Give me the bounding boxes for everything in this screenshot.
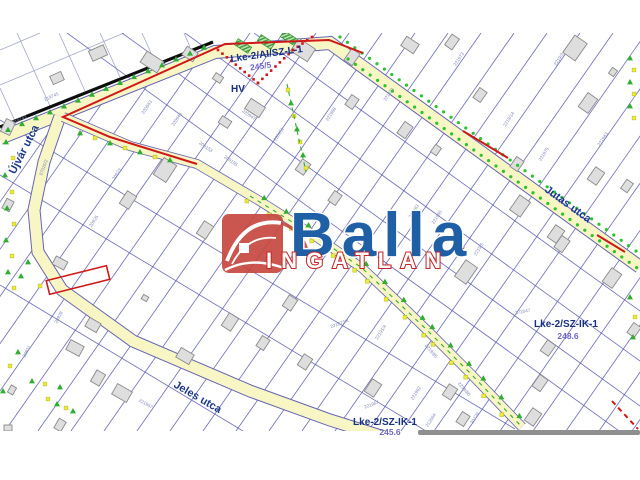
parcel-number: 221943 bbox=[596, 131, 609, 147]
tree-marker-green bbox=[70, 408, 76, 413]
building-footprint bbox=[7, 385, 16, 395]
building-footprint bbox=[218, 116, 232, 129]
street-tree-dot bbox=[524, 186, 527, 189]
street-tree-dot bbox=[413, 106, 416, 109]
street-tree-dot bbox=[435, 122, 438, 125]
street-tree-dot bbox=[576, 223, 579, 226]
building-footprint bbox=[295, 159, 311, 175]
road-jeles-utca bbox=[34, 116, 400, 442]
tree-marker-green bbox=[57, 384, 63, 389]
street-tree-dot bbox=[361, 68, 364, 71]
building-footprint bbox=[212, 73, 223, 84]
red-boundary-dot bbox=[274, 65, 277, 68]
street-tree-dot bbox=[561, 213, 564, 216]
street-tree-dot bbox=[428, 116, 431, 119]
red-boundary-dot bbox=[257, 82, 260, 85]
street-tree-dot bbox=[354, 63, 357, 66]
map-canvas[interactable]: 21974321974507026/2220943220945220947209… bbox=[0, 0, 640, 480]
street-tree-dot bbox=[420, 111, 423, 114]
street-tree-dot bbox=[494, 164, 497, 167]
street-tree-dot bbox=[598, 239, 601, 242]
street-tree-dot bbox=[627, 244, 630, 247]
street-tree-dot bbox=[464, 126, 467, 129]
building-footprint bbox=[397, 121, 413, 138]
street-tree-dot bbox=[449, 116, 452, 119]
street-tree-dot bbox=[613, 250, 616, 253]
zone-value-245-5: 245/5 bbox=[249, 60, 272, 73]
building-footprint bbox=[90, 370, 105, 386]
parcel-number: 212064 bbox=[424, 412, 437, 428]
building-footprint bbox=[112, 384, 133, 403]
tree-marker-yellow bbox=[93, 136, 97, 140]
street-tree-dot bbox=[635, 266, 638, 269]
parcel-number: 221975 bbox=[537, 146, 550, 162]
tree-marker-green bbox=[627, 79, 633, 84]
parcel-number: 219745 bbox=[43, 91, 59, 102]
street-tree-dot bbox=[457, 121, 460, 124]
street-tree-dot bbox=[398, 95, 401, 98]
street-tree-dot bbox=[546, 202, 549, 205]
street-tree-dot bbox=[591, 234, 594, 237]
tree-marker-yellow bbox=[431, 343, 435, 347]
street-tree-dot bbox=[376, 79, 379, 82]
parcel-number: 221968 bbox=[324, 106, 337, 122]
tree-marker-yellow bbox=[153, 155, 157, 159]
building-footprint bbox=[510, 195, 531, 217]
street-tree-dot bbox=[346, 57, 349, 60]
tree-marker-yellow bbox=[403, 315, 407, 319]
tree-marker-yellow bbox=[38, 284, 42, 288]
parcel-number: 221962 bbox=[409, 385, 422, 401]
building-footprint bbox=[621, 179, 634, 193]
tree-marker-yellow bbox=[482, 394, 486, 398]
street-label-jeles-utca: Jeles utca bbox=[171, 379, 224, 416]
building-footprint bbox=[578, 93, 598, 114]
tree-marker-yellow bbox=[10, 190, 14, 194]
tree-marker-yellow bbox=[384, 297, 388, 301]
parcel-number: 20729 bbox=[469, 411, 480, 425]
parcel-number: 220943 bbox=[140, 99, 153, 115]
tree-marker-yellow bbox=[286, 88, 290, 92]
building-footprint bbox=[602, 268, 622, 289]
building-footprint bbox=[587, 167, 605, 186]
zone-value-245-6: 245.6 bbox=[379, 427, 401, 437]
street-tree-dot bbox=[554, 207, 557, 210]
red-boundary-dot bbox=[221, 52, 224, 55]
street-tree-dot bbox=[369, 73, 372, 76]
building-footprint bbox=[524, 408, 542, 427]
tree-marker-yellow bbox=[10, 254, 14, 258]
tree-marker-yellow bbox=[632, 68, 636, 72]
parcel-line bbox=[500, 33, 640, 431]
street-tree-dot bbox=[517, 180, 520, 183]
tree-marker-yellow bbox=[449, 361, 453, 365]
tree-marker-green bbox=[15, 349, 21, 354]
tree-marker-green bbox=[77, 130, 83, 135]
street-tree-dot bbox=[523, 169, 526, 172]
red-boundary-dot bbox=[239, 67, 242, 70]
street-tree-dot bbox=[412, 89, 415, 92]
red-boundary-dot bbox=[248, 74, 251, 77]
street-tree-dot bbox=[583, 229, 586, 232]
tree-marker-yellow bbox=[46, 397, 50, 401]
tree-marker-green bbox=[54, 401, 60, 406]
parcel-number: 221967 bbox=[363, 399, 380, 409]
tree-marker-yellow bbox=[500, 413, 504, 417]
street-tree-dot bbox=[612, 233, 615, 236]
street-tree-dot bbox=[457, 138, 460, 141]
parcel-number: 20923 bbox=[111, 167, 122, 181]
parcel-number: 20925 bbox=[88, 214, 99, 228]
street-tree-dot bbox=[442, 110, 445, 113]
red-boundary-dot bbox=[217, 49, 220, 52]
cadastral-map[interactable]: 21974321974507026/2220943220945220947209… bbox=[0, 0, 640, 480]
logo-trademark-mark: ´ bbox=[462, 247, 465, 258]
tree-marker-green bbox=[29, 378, 35, 383]
street-tree-dot bbox=[427, 100, 430, 103]
red-boundary-dot bbox=[252, 78, 255, 81]
street-tree-dot bbox=[605, 228, 608, 231]
street-tree-dot bbox=[443, 127, 446, 130]
tree-marker-green bbox=[627, 55, 633, 60]
building-footprint bbox=[221, 313, 238, 332]
street-tree-dot bbox=[368, 57, 371, 60]
tree-marker-green bbox=[0, 388, 6, 393]
building-footprint bbox=[364, 379, 381, 398]
tree-marker-yellow bbox=[632, 116, 636, 120]
street-tree-dot bbox=[605, 245, 608, 248]
tree-marker-green bbox=[18, 273, 24, 278]
street-tree-dot bbox=[539, 197, 542, 200]
street-tree-dot bbox=[406, 100, 409, 103]
building-footprint bbox=[532, 374, 548, 391]
greenhouse-footprint bbox=[329, 5, 346, 20]
zone-label-hv: HV bbox=[231, 84, 245, 95]
street-tree-dot bbox=[420, 94, 423, 97]
tree-marker-yellow bbox=[632, 92, 636, 96]
street-tree-dot bbox=[538, 180, 541, 183]
street-tree-dot bbox=[435, 105, 438, 108]
street-tree-dot bbox=[634, 249, 637, 252]
street-tree-dot bbox=[383, 84, 386, 87]
street-tree-dot bbox=[480, 154, 483, 157]
street-tree-dot bbox=[465, 143, 468, 146]
building-footprint bbox=[563, 35, 587, 61]
watermark-logo: Balla INGATLAN ´ bbox=[222, 201, 473, 273]
street-tree-dot bbox=[472, 148, 475, 151]
building-footprint bbox=[401, 36, 420, 53]
tree-marker-yellow bbox=[422, 333, 426, 337]
red-boundary-dot bbox=[243, 71, 246, 74]
map-bottom-border bbox=[418, 430, 640, 435]
street-tree-dot bbox=[375, 62, 378, 65]
street-tree-dot bbox=[568, 218, 571, 221]
building-footprint bbox=[297, 354, 312, 370]
street-tree-dot bbox=[450, 132, 453, 135]
parcel-number: 22191/4 bbox=[374, 323, 387, 340]
building-footprint bbox=[196, 221, 213, 240]
parcel-number: 2219/14 bbox=[502, 110, 515, 127]
street-tree-dot bbox=[405, 84, 408, 87]
building-footprint bbox=[50, 71, 65, 84]
greenhouse-footprint bbox=[309, 13, 326, 28]
street-tree-dot bbox=[620, 255, 623, 258]
tree-marker-yellow bbox=[64, 406, 68, 410]
street-tree-dot bbox=[628, 261, 631, 264]
tree-marker-green bbox=[5, 269, 11, 274]
street-tree-dot bbox=[472, 132, 475, 135]
building-footprint bbox=[456, 412, 470, 427]
street-tree-dot bbox=[383, 68, 386, 71]
building-footprint bbox=[431, 144, 442, 155]
street-tree-dot bbox=[338, 35, 341, 38]
building-footprint bbox=[141, 294, 149, 301]
logo-subtitle-text: INGATLAN bbox=[266, 248, 450, 273]
tree-marker-yellow bbox=[8, 364, 12, 368]
street-tree-dot bbox=[531, 175, 534, 178]
parcel-number: 2219/3 bbox=[553, 52, 565, 67]
street-tree-dot bbox=[398, 78, 401, 81]
parcel-number: 20931 bbox=[21, 344, 32, 358]
building-footprint bbox=[4, 425, 12, 431]
building-footprint bbox=[445, 34, 460, 50]
building-footprint bbox=[473, 88, 487, 103]
building-footprint bbox=[54, 418, 66, 432]
street-tree-dot bbox=[502, 170, 505, 173]
street-tree-dot bbox=[516, 164, 519, 167]
building-footprint bbox=[66, 340, 84, 357]
street-tree-dot bbox=[597, 223, 600, 226]
street-tree-dot bbox=[390, 73, 393, 76]
tree-marker-yellow bbox=[245, 199, 249, 203]
street-tree-dot bbox=[487, 159, 490, 162]
street-tree-dot bbox=[509, 158, 512, 161]
tree-marker-yellow bbox=[464, 375, 468, 379]
parcel-number: 209155 bbox=[223, 154, 239, 167]
street-tree-dot bbox=[620, 239, 623, 242]
red-boundary-dot bbox=[311, 36, 314, 39]
tree-marker-yellow bbox=[12, 222, 16, 226]
red-boundary-dot bbox=[261, 78, 264, 81]
parcel-number: 372047 bbox=[515, 308, 531, 316]
red-boundary-dot bbox=[306, 39, 309, 42]
street-tree-dot bbox=[346, 41, 349, 44]
tree-marker-green bbox=[2, 172, 8, 177]
tree-marker-yellow bbox=[12, 286, 16, 290]
red-boundary-dot bbox=[226, 56, 229, 59]
parcel-number: 221957 bbox=[138, 398, 154, 410]
building-footprint bbox=[88, 45, 107, 62]
street-tree-dot bbox=[509, 175, 512, 178]
red-boundary-dot bbox=[279, 61, 282, 64]
street-tree-dot bbox=[531, 191, 534, 194]
tree-marker-yellow bbox=[633, 315, 637, 319]
parcel-number: 2219/5 bbox=[473, 242, 485, 257]
zone-label-lke2-sz-ik-1-right: Lke-2/SZ-IK-1 bbox=[534, 319, 598, 330]
tree-marker-green bbox=[294, 126, 300, 131]
red-boundary-dot bbox=[265, 73, 268, 76]
parcel-number: 220951 bbox=[272, 126, 285, 142]
parcel-number: 220945 bbox=[170, 111, 183, 127]
tree-marker-yellow bbox=[365, 279, 369, 283]
tree-marker-yellow bbox=[304, 166, 308, 170]
zone-value-248-6: 248.6 bbox=[557, 331, 579, 341]
tree-marker-yellow bbox=[123, 146, 127, 150]
tree-marker-yellow bbox=[43, 382, 47, 386]
